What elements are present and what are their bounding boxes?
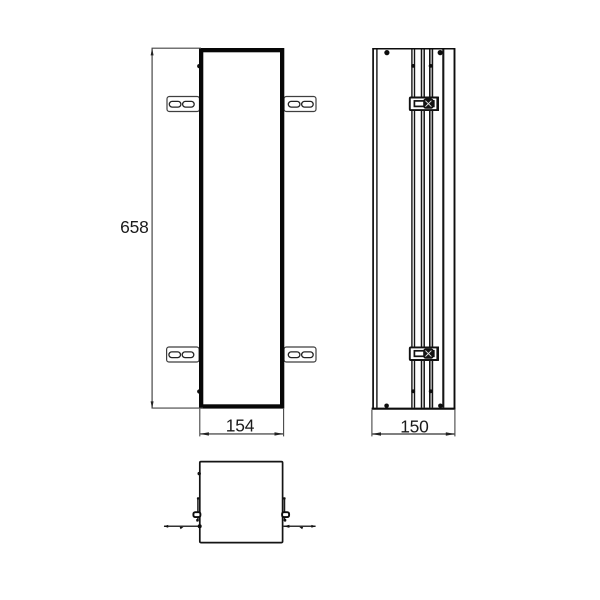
svg-text:154: 154 bbox=[226, 416, 255, 436]
svg-text:658: 658 bbox=[120, 217, 148, 237]
svg-text:150: 150 bbox=[400, 416, 428, 436]
